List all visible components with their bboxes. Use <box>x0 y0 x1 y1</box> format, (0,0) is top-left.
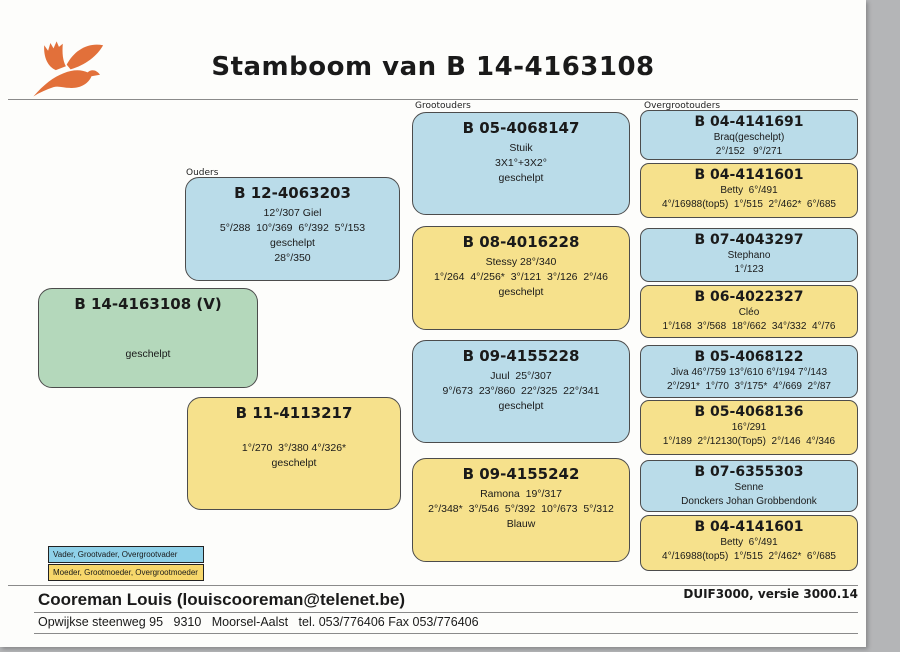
pedigree-box-greatgrandparent-8: B 04-4141601 Betty 6°/491 4°/16988(top5)… <box>640 515 858 571</box>
software-version: DUIF3000, versie 3000.14 <box>600 587 858 601</box>
owner-name-email: Cooreman Louis (louiscooreman@telenet.be… <box>38 590 405 610</box>
box-line: 16°/291 <box>641 421 857 435</box>
pedigree-box-greatgrandparent-2: B 04-4141601 Betty 6°/491 4°/16988(top5)… <box>640 163 858 218</box>
box-line: 2°/152 9°/271 <box>641 145 857 159</box>
box-line: Betty 6°/491 <box>641 184 857 198</box>
ring-number: B 14-4163108 (V) <box>39 289 257 313</box>
legend-male-row: Vader, Grootvader, Overgrootvader <box>48 546 204 563</box>
legend-female-row: Moeder, Grootmoeder, Overgrootmoeder <box>48 564 204 581</box>
pedigree-box-subject: B 14-4163108 (V) geschelpt <box>38 288 258 388</box>
box-line: 1°/264 4°/256* 3°/121 3°/126 2°/46 <box>413 270 629 285</box>
pedigree-box-greatgrandparent-7: B 07-6355303 Senne Donckers Johan Grobbe… <box>640 460 858 512</box>
box-line: Stephano <box>641 249 857 263</box>
box-line: 1°/189 2°/12130(Top5) 2°/146 4°/346 <box>641 435 857 449</box>
box-line: 28°/350 <box>186 251 399 266</box>
box-line: 2°/348* 3°/546 5°/392 10°/673 5°/312 <box>413 502 629 517</box>
box-line: geschelpt <box>413 285 629 300</box>
box-line: Senne <box>641 481 857 495</box>
box-line: Stuik <box>413 141 629 156</box>
box-line: geschelpt <box>188 456 400 471</box>
ring-number: B 07-4043297 <box>641 229 857 248</box>
box-line <box>39 332 257 347</box>
box-line: 9°/673 23°/860 22°/325 22°/341 <box>413 384 629 399</box>
pedigree-box-mother: B 11-4113217 1°/270 3°/380 4°/326* gesch… <box>187 397 401 510</box>
box-line: geschelpt <box>413 171 629 186</box>
footer-divider-top <box>8 585 858 586</box>
box-line: 1°/123 <box>641 263 857 277</box>
ring-number: B 04-4141691 <box>641 111 857 130</box>
ring-number: B 05-4068136 <box>641 401 857 420</box>
ring-number: B 09-4155228 <box>413 341 629 365</box>
pedigree-box-greatgrandparent-3: B 07-4043297 Stephano 1°/123 <box>640 228 858 282</box>
box-line: Blauw <box>413 517 629 532</box>
box-line: geschelpt <box>413 399 629 414</box>
ring-number: B 04-4141601 <box>641 164 857 183</box>
box-line <box>188 426 400 441</box>
pedigree-box-grandmother-1: B 08-4016228 Stessy 28°/340 1°/264 4°/25… <box>412 226 630 330</box>
page-title: Stamboom van B 14-4163108 <box>0 52 866 82</box>
pedigree-box-grandfather-1: B 05-4068147 Stuik 3X1°+3X2° geschelpt <box>412 112 630 215</box>
pedigree-box-greatgrandparent-6: B 05-4068136 16°/291 1°/189 2°/12130(Top… <box>640 400 858 455</box>
pedigree-box-greatgrandparent-5: B 05-4068122 Jiva 46°/759 13°/610 6°/194… <box>640 345 858 398</box>
box-line: Betty 6°/491 <box>641 536 857 550</box>
ring-number: B 09-4155242 <box>413 459 629 483</box>
box-line: 1°/270 3°/380 4°/326* <box>188 441 400 456</box>
box-line: geschelpt <box>186 236 399 251</box>
pedigree-box-greatgrandparent-4: B 06-4022327 Cléo 1°/168 3°/568 18°/662 … <box>640 285 858 338</box>
box-line: 4°/16988(top5) 1°/515 2°/462* 6°/685 <box>641 198 857 212</box>
box-line: Ramona 19°/317 <box>413 487 629 502</box>
box-line: 2°/291* 1°/70 3°/175* 4°/669 2°/87 <box>641 380 857 394</box>
ring-number: B 05-4068147 <box>413 113 629 137</box>
paper-sheet: Stamboom van B 14-4163108 Ouders Grootou… <box>0 0 866 647</box>
color-legend: Vader, Grootvader, Overgrootvader Moeder… <box>48 546 204 581</box>
ring-number: B 07-6355303 <box>641 461 857 480</box>
box-line: 1°/168 3°/568 18°/662 34°/332 4°/76 <box>641 320 857 334</box>
column-label-grootouders: Grootouders <box>415 101 471 111</box>
ring-number: B 08-4016228 <box>413 227 629 251</box>
box-line <box>39 317 257 332</box>
box-line: Donckers Johan Grobbendonk <box>641 495 857 509</box>
ring-number: B 11-4113217 <box>188 398 400 422</box>
pedigree-box-greatgrandparent-1: B 04-4141691 Braq(geschelpt) 2°/152 9°/2… <box>640 110 858 160</box>
pedigree-box-grandmother-2: B 09-4155242 Ramona 19°/317 2°/348* 3°/5… <box>412 458 630 562</box>
footer-divider-bottom <box>34 633 858 634</box>
pedigree-box-grandfather-2: B 09-4155228 Juul 25°/307 9°/673 23°/860… <box>412 340 630 443</box>
box-line: 4°/16988(top5) 1°/515 2°/462* 6°/685 <box>641 550 857 564</box>
box-line: Juul 25°/307 <box>413 369 629 384</box>
pedigree-box-father: B 12-4063203 12°/307 Giel 5°/288 10°/369… <box>185 177 400 281</box>
ring-number: B 05-4068122 <box>641 346 857 365</box>
header-divider <box>8 99 858 100</box>
ring-number: B 12-4063203 <box>186 178 399 202</box>
box-line: 12°/307 Giel <box>186 206 399 221</box>
owner-address: Opwijkse steenweg 95 9310 Moorsel-Aalst … <box>38 615 479 629</box>
box-line: Braq(geschelpt) <box>641 131 857 145</box>
box-line: Jiva 46°/759 13°/610 6°/194 7°/143 <box>641 366 857 380</box>
box-line: 3X1°+3X2° <box>413 156 629 171</box>
scanned-pedigree-document: Stamboom van B 14-4163108 Ouders Grootou… <box>0 0 900 652</box>
footer-divider-middle <box>34 612 858 613</box>
ring-number: B 04-4141601 <box>641 516 857 535</box>
ring-number: B 06-4022327 <box>641 286 857 305</box>
box-line: geschelpt <box>39 347 257 362</box>
box-line: Cléo <box>641 306 857 320</box>
box-line: 5°/288 10°/369 6°/392 5°/153 <box>186 221 399 236</box>
box-line: Stessy 28°/340 <box>413 255 629 270</box>
